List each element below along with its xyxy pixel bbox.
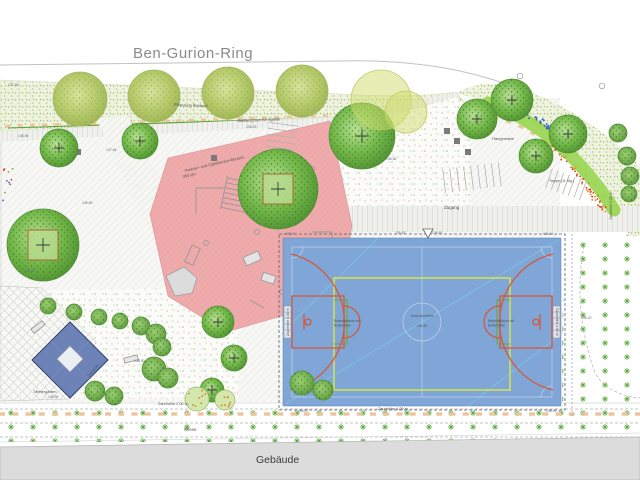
shrub-texture — [66, 304, 82, 320]
paving-tick — [489, 412, 495, 415]
elevation-label: 136.65 — [432, 231, 442, 235]
planting-circle — [215, 390, 235, 410]
paving-tick — [145, 412, 151, 415]
flower-dot — [4, 192, 6, 194]
paving-tick — [105, 412, 111, 415]
flower-dot-red — [586, 189, 588, 191]
plan-label: Wiese — [184, 427, 197, 432]
paving-tick — [189, 119, 194, 122]
flower-dot-red — [591, 195, 593, 197]
flower-dot-red — [574, 170, 576, 172]
elevation-label: 136.74 — [285, 232, 295, 236]
paving-tick — [92, 412, 98, 415]
paving-tick — [330, 412, 336, 415]
flower-dot-red — [576, 175, 578, 177]
elevation-label: 135.41 — [543, 232, 553, 236]
elevation-label: 136.43 — [246, 125, 256, 129]
paving-tick — [5, 125, 10, 128]
paving-tick — [12, 412, 18, 415]
flower-dot-red — [581, 183, 583, 185]
paving-tick — [503, 412, 509, 415]
flower-dot-blue — [546, 123, 548, 125]
flower-dot-red — [591, 199, 593, 201]
paving-tick — [238, 412, 244, 415]
paving-tick — [291, 412, 297, 415]
shrub-texture — [618, 147, 636, 165]
paving-tick — [0, 412, 5, 415]
flower-dot-blue — [539, 120, 541, 122]
flower-dot-red — [566, 160, 568, 162]
flower-dot-blue — [528, 117, 530, 119]
shrub-texture — [290, 371, 314, 395]
flower-dot-red — [602, 208, 604, 210]
flower-dot-red — [586, 187, 588, 189]
paving-tick — [132, 412, 138, 415]
elevation-label: 137.48 — [106, 148, 116, 152]
plan-label: Mietergärten — [34, 389, 56, 394]
flower-dot-red — [571, 167, 573, 169]
flower-dot-red — [596, 198, 598, 200]
paving-tick — [79, 412, 85, 415]
paving-tick — [450, 412, 456, 415]
paving-tick — [357, 412, 363, 415]
paving-tick — [251, 412, 257, 415]
flower-dot-red — [597, 204, 599, 206]
elevation-label: 136.36 — [48, 395, 58, 399]
flower-dot — [8, 171, 10, 173]
shrub-texture — [85, 381, 105, 401]
elevation-label: 137.95 — [8, 83, 18, 87]
paving-tick — [286, 116, 291, 119]
flower-dot-red — [595, 199, 597, 201]
flower-dot-red — [587, 191, 589, 193]
flower-dot-red — [554, 149, 556, 151]
shrub-texture — [158, 368, 178, 388]
elevation-label: 136.30 — [134, 359, 144, 363]
paving-tick — [65, 412, 71, 415]
planting-dot — [224, 404, 226, 406]
building-band — [0, 437, 640, 480]
street-tree-texture — [53, 72, 107, 126]
paving-tick — [140, 120, 145, 123]
paving-tick — [317, 412, 323, 415]
paving-tick — [211, 412, 217, 415]
paving-tick — [423, 412, 429, 415]
shrub-texture — [621, 167, 639, 185]
paving-tick — [18, 124, 23, 127]
plan-label: Treppe (11 Stg.) — [549, 179, 574, 183]
flower-dot — [6, 180, 8, 182]
elevation-label: 136.06 — [18, 134, 28, 138]
elevation-label: 136.19 — [581, 316, 591, 320]
plan-label: 136.45 — [417, 324, 427, 328]
paving-tick — [264, 412, 270, 415]
paving-tick — [383, 412, 389, 415]
paving-tick — [54, 123, 59, 126]
planting-dot — [229, 402, 231, 404]
street-tree-texture — [276, 65, 328, 117]
flower-dot-red — [601, 206, 603, 208]
plan-label: Zaunhöhe 2.30 m — [609, 192, 613, 220]
street-tree-texture — [128, 70, 180, 122]
paving-tick — [609, 412, 615, 415]
shrub-texture — [40, 298, 56, 314]
plan-label: Zaunhöhe 4.00 m — [555, 308, 559, 336]
paving-tick — [622, 412, 628, 415]
flower-dot-red — [599, 202, 601, 204]
planting-dot — [194, 405, 196, 407]
plan-label: Zaunhöhe 2.00 m — [158, 402, 188, 406]
paving-tick — [529, 412, 535, 415]
site-plan: Pflanzung BestandBallfangzaun für Spiele… — [0, 0, 640, 480]
flower-dot-red — [579, 175, 581, 177]
planting-dot — [228, 406, 230, 408]
plan-label: Bodenhülse — [334, 324, 351, 328]
flower-dot-red — [581, 178, 583, 180]
paving-tick — [370, 412, 376, 415]
flower-dot — [2, 200, 4, 202]
plan-label: Hängematte — [492, 136, 515, 141]
paving-tick — [463, 412, 469, 415]
flower-dot-blue — [547, 126, 549, 128]
planting-dot — [227, 397, 229, 399]
flower-dot-red — [559, 154, 561, 156]
paving-tick — [323, 114, 328, 117]
planting-circle — [185, 387, 209, 411]
flower-dot-red — [594, 196, 596, 198]
planting-dot — [224, 396, 226, 398]
flower-dot-red — [592, 192, 594, 194]
planter-square — [444, 128, 450, 134]
paving-tick — [201, 118, 206, 121]
paving-tick — [344, 412, 350, 415]
shrub-texture — [112, 313, 128, 329]
planting-dot — [201, 390, 203, 392]
flower-dot-blue — [540, 122, 542, 124]
flower-dot-red — [590, 194, 592, 196]
shrub-texture — [609, 124, 627, 142]
flower-dot-red — [604, 211, 606, 213]
elevation-label: 136.63 — [395, 231, 405, 235]
flower-dot-red — [602, 205, 604, 207]
lamp-post-icon — [517, 73, 523, 79]
lamp-post-icon — [599, 83, 605, 89]
flower-dot-red — [590, 190, 592, 192]
flower-dot-red — [561, 156, 563, 158]
elevation-label: 136.56 — [386, 157, 396, 161]
planting-dot — [192, 404, 194, 406]
flower-dot-blue — [542, 118, 544, 120]
planting-dot — [201, 395, 203, 397]
paving-tick — [436, 412, 442, 415]
site-plan-drawing: Pflanzung BestandBallfangzaun für Spiele… — [0, 0, 640, 480]
paving-tick — [556, 412, 562, 415]
flower-dot-red — [560, 159, 562, 161]
paving-tick — [635, 412, 640, 415]
plan-label: Zaunhöhe 4.00 m — [378, 407, 408, 411]
paving-tick — [30, 124, 35, 127]
existing-crown — [385, 91, 427, 133]
paving-tick — [595, 412, 601, 415]
shrub-texture — [105, 387, 123, 405]
flower-dot-red — [605, 206, 607, 208]
planting-dot — [200, 402, 202, 404]
flower-dot-blue — [536, 118, 538, 120]
planting-dot — [188, 393, 190, 395]
shrub-texture — [313, 380, 333, 400]
flower-dot-blue — [544, 125, 546, 127]
elevation-label: 136.07 — [298, 409, 308, 413]
flower-dot-red — [563, 157, 565, 159]
elevation-label: 136.65 — [82, 201, 92, 205]
paving-tick — [171, 412, 177, 415]
flower-dot — [8, 182, 10, 184]
paving-tick — [118, 412, 124, 415]
plan-label: Kleinspielfeld — [411, 314, 433, 318]
plan-label: Bodenhülse — [488, 324, 505, 328]
paving-tick — [176, 119, 181, 122]
paving-tick — [52, 412, 58, 415]
street-name-label: Ben-Gurion-Ring — [133, 45, 253, 62]
paving-tick — [158, 412, 164, 415]
street-tree-texture — [202, 67, 254, 119]
paving-tick — [582, 412, 588, 415]
planting-dot — [204, 393, 206, 395]
paving-tick — [224, 412, 230, 415]
flower-dot-red — [597, 195, 599, 197]
flower-dot — [12, 168, 14, 170]
flower-dot-blue — [546, 128, 548, 130]
paving-tick — [410, 412, 416, 415]
planting-dot — [221, 404, 223, 406]
paving-tick — [397, 412, 403, 415]
plan-label: Basketballkorb mit — [334, 319, 360, 323]
flower-dot-red — [581, 181, 583, 183]
shrub-texture — [153, 338, 171, 356]
paving-tick — [26, 412, 32, 415]
flower-dot — [11, 179, 13, 181]
paving-tick — [476, 412, 482, 415]
paving-tick — [39, 412, 45, 415]
paving-tick — [198, 412, 204, 415]
shrub-texture — [621, 186, 637, 202]
elevation-label: 136.40 — [546, 409, 556, 413]
plan-label: Zaunhöhe 4.00 m — [286, 308, 290, 336]
planter-square — [465, 149, 471, 155]
flower-dot-blue — [535, 117, 537, 119]
flower-dot — [3, 168, 5, 170]
paving-tick — [213, 118, 218, 121]
flower-dot — [9, 183, 11, 185]
flower-dot-red — [574, 168, 576, 170]
planter-square — [454, 138, 460, 144]
paving-tick — [516, 412, 522, 415]
elevation-label: 135.05 — [24, 269, 34, 273]
paving-tick-row — [0, 412, 640, 415]
paving-tick — [185, 412, 191, 415]
flower-dot-red — [588, 183, 590, 185]
planting-dot — [198, 397, 200, 399]
flower-dot-red — [576, 173, 578, 175]
shrub-texture — [91, 309, 107, 325]
planting-dot — [229, 403, 231, 405]
building-label: Gebäude — [256, 454, 299, 466]
plan-label: Basketballkorb mit — [488, 319, 514, 323]
paving-tick — [42, 123, 47, 126]
plan-label: Zugang — [444, 205, 460, 210]
paving-tick — [277, 412, 283, 415]
